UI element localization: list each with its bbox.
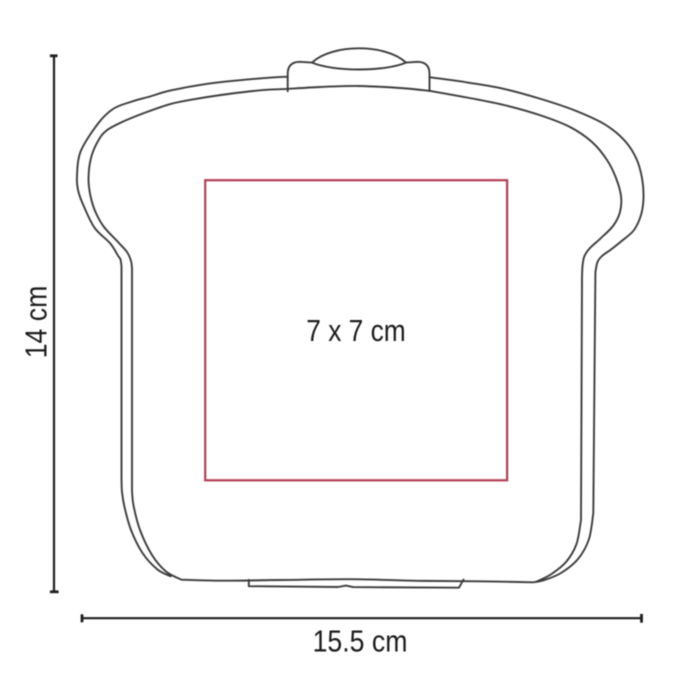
svg-text:15.5 cm: 15.5 cm <box>313 625 408 659</box>
svg-text:14 cm: 14 cm <box>20 286 54 359</box>
svg-text:7 x 7 cm: 7 x 7 cm <box>306 314 406 348</box>
